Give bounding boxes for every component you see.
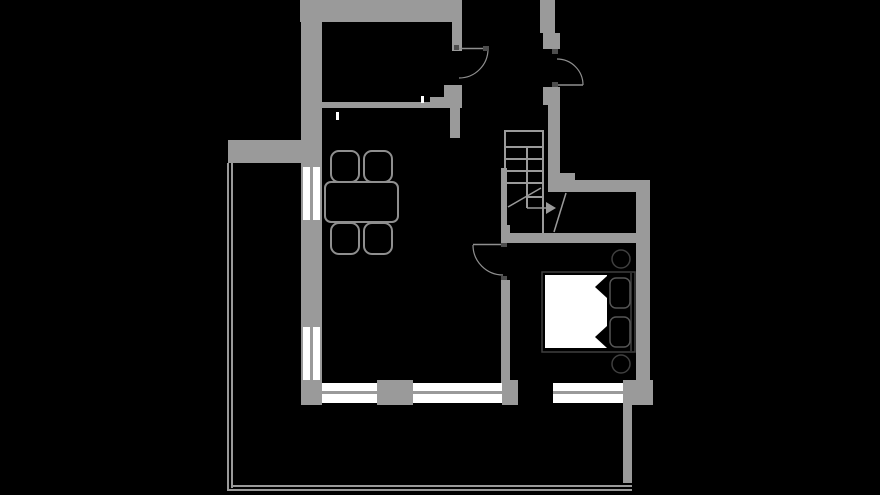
wall-stair-right [548,87,560,181]
door3-hinge-b [501,276,507,280]
door3-swing-arc [473,245,503,275]
door2-hinge-b [552,82,558,87]
terrace-wall-top [228,140,302,163]
window-bottom-2-mullion [413,391,502,394]
wall-inner-top-step2 [444,85,462,108]
wall-bottom-seg2 [502,380,518,405]
window-left-upper-mullion [310,167,313,220]
chair-bottom-left [331,223,359,254]
wall-inner-top-step1 [430,97,446,108]
window-left-lower-mullion [310,327,313,380]
wall-bottom-corner-right [623,380,653,405]
wall-void-top [548,180,650,192]
door1-swing-arc [459,49,488,78]
door2-swing-arc [557,59,583,85]
terrace-railing-left-inner [231,163,233,488]
door1-hinge-b [483,46,489,51]
void-break-diagonal [554,193,566,232]
window-bottom-1-mullion [322,391,377,394]
chair-top-left [331,151,359,182]
wall-right-lower [623,405,632,483]
stairs-arrow-head [546,202,556,214]
pillow-top [610,278,630,308]
door3-hinge-a [501,243,507,247]
terrace-railing-bottom-outer [227,489,632,491]
pillow-bottom [610,317,630,347]
side-table-bottom [612,355,630,373]
side-table-top [612,250,630,268]
wall-bedroom-left [501,280,510,383]
terrace-railing-left-outer [227,163,229,491]
wall-entry-right-bump [543,33,560,49]
wall-inner-top-thin [322,102,432,108]
chair-top-right [364,151,392,182]
floor-plan-canvas [0,0,880,495]
wall-tick-1 [421,96,424,103]
window-bottom-3-mullion [553,391,623,394]
wall-entry-right-top [540,0,555,33]
terrace-railing-bottom-inner [231,485,632,487]
wall-bottom-seg1 [377,380,413,405]
dining-table [325,182,398,222]
wall-top [300,0,462,22]
door1-hinge-a [454,45,459,50]
chair-bottom-right [364,223,392,254]
door2-hinge-a [552,49,558,54]
wall-right [636,180,650,405]
wall-hall-divider [450,108,460,138]
wall-tick-2 [336,112,339,120]
floor-plan [0,0,880,495]
